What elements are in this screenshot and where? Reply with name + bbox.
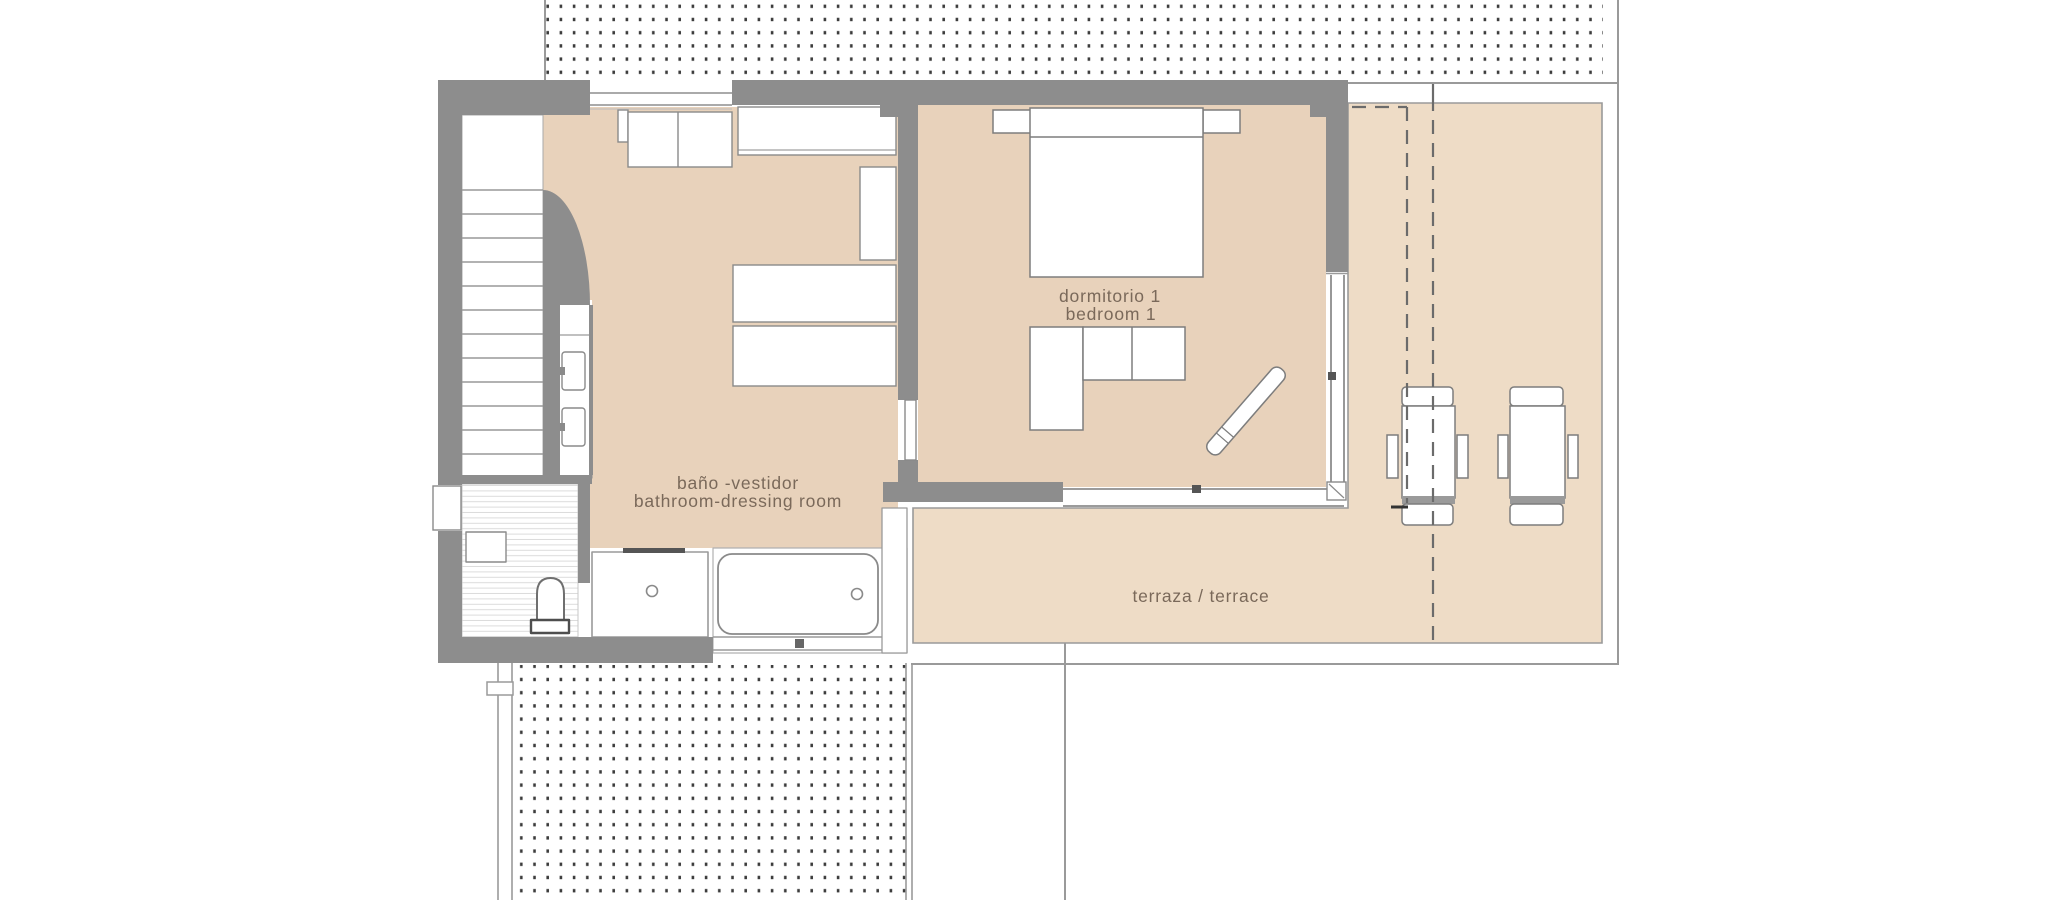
wall-partition [898, 105, 918, 400]
wall-bedroom-bottom [883, 482, 1063, 502]
side-table [1498, 435, 1508, 478]
sink-top [562, 352, 585, 390]
wardrobe-top-left [628, 112, 732, 167]
wall-right [1326, 105, 1348, 272]
wall-stair-side [543, 300, 560, 478]
lobby-cabinet [466, 532, 506, 562]
bedroom-door-leaf [905, 400, 916, 460]
wardrobe-island-1 [733, 265, 896, 322]
bathroom-label-es: baño -vestidor [677, 473, 799, 493]
side-table [1457, 435, 1468, 478]
wall-stub [578, 484, 590, 583]
sofa-seat-section [1083, 327, 1185, 380]
bed [1030, 108, 1203, 277]
floor-plan-canvas: dormitorio 1 bedroom 1 baño -vestidor ba… [0, 0, 2048, 900]
corner-window-post [1327, 482, 1346, 500]
wall-top-left-block [438, 80, 590, 115]
wall-thin-edge [589, 305, 593, 475]
wardrobe-top-right [738, 107, 896, 155]
sofa-chaise-section [1030, 327, 1083, 430]
side-table [1387, 435, 1398, 478]
tub-rail-post [795, 639, 804, 648]
sink-bottom [562, 408, 585, 446]
shower-entry [623, 548, 685, 553]
wardrobe-island-2 [733, 326, 896, 386]
bathroom-label-en: bathroom-dressing room [634, 491, 842, 511]
bath-screen-wall [882, 508, 907, 653]
entry-door-leaf [433, 486, 461, 530]
faucet-bottom [560, 423, 565, 431]
wardrobe-side [860, 167, 896, 260]
wall-lobby-top [462, 475, 592, 484]
wall-step [1310, 105, 1327, 117]
nightstand-right [1203, 110, 1240, 133]
shower-drain [647, 586, 658, 597]
floor-plan-drawing: dormitorio 1 bedroom 1 baño -vestidor ba… [0, 0, 2048, 900]
exterior-step [487, 682, 513, 695]
window-bottom [1063, 485, 1344, 506]
bedroom-label-es: dormitorio 1 [1059, 286, 1161, 306]
staircase [462, 115, 543, 478]
faucet-top [560, 367, 565, 375]
terrace-label: terraza / terrace [1132, 586, 1269, 606]
wall-bottom [438, 637, 713, 663]
shower [592, 548, 708, 637]
pergola-dotted-area-bottom [513, 665, 906, 900]
wall-left-upper [438, 115, 462, 485]
window-right [1326, 274, 1348, 483]
bedroom-label-en: bedroom 1 [1066, 304, 1157, 324]
wardrobe-strip [618, 110, 628, 142]
side-table [1568, 435, 1578, 478]
pergola-dotted-area-top [545, 0, 1603, 80]
tub-drain [852, 589, 863, 600]
wall-top [732, 80, 1348, 105]
nightstand-left [993, 110, 1032, 133]
window-top [590, 93, 732, 109]
